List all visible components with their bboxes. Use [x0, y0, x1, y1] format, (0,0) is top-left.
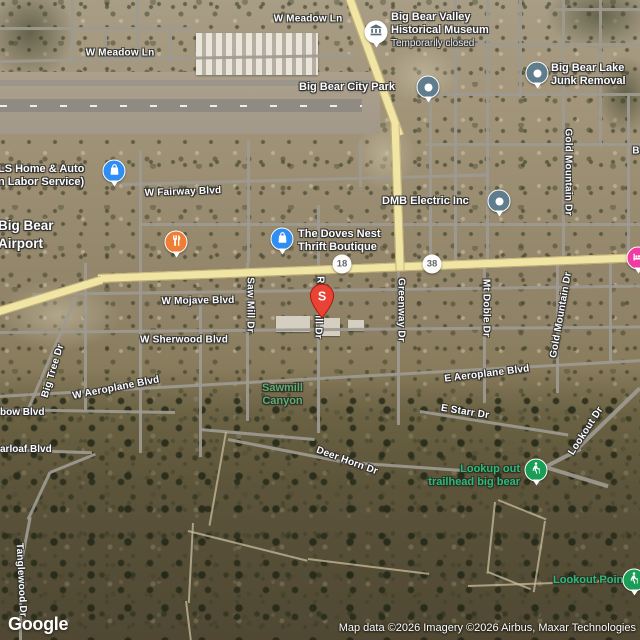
hiking-icon [530, 461, 543, 479]
doves-nest-pin[interactable] [271, 228, 294, 251]
bed-icon [632, 249, 640, 267]
restaurant-pin[interactable] [165, 231, 188, 254]
road-segment [430, 93, 640, 96]
poi-label-line: Junk Removal [551, 75, 626, 88]
road-segment [71, 0, 74, 62]
ls-home-auto-pin[interactable] [103, 160, 126, 183]
road-segment [139, 263, 142, 453]
poi-label-doves-nest[interactable]: The Doves Nest Thrift Boutique [298, 228, 381, 253]
poi-label-big-bear-airport[interactable]: Big Bear Airport [0, 217, 54, 252]
poi-label-line: n Labor Service) [0, 176, 84, 189]
poi-label-big-bear-city-park[interactable]: Big Bear City Park [299, 81, 395, 94]
shopping-bag-icon [108, 162, 120, 180]
poi-label-line: trailhead big bear [428, 476, 520, 489]
lookout-point-pin[interactable] [623, 569, 640, 592]
city-park-pin[interactable] [417, 76, 440, 99]
place-dot-icon [495, 197, 503, 205]
street-label-w-meadow-ln-2: W Meadow Ln [274, 14, 343, 25]
marker-letter: S [318, 290, 326, 304]
poi-label-line: Big Bear Lake [551, 62, 626, 75]
road-segment [609, 263, 612, 363]
route-shield-18-label: 18 [337, 259, 348, 270]
road-segment [169, 27, 172, 62]
street-label-saw-mill-dr: Saw Mill Dr [245, 277, 256, 333]
road-segment [555, 8, 640, 11]
road-segment [140, 223, 640, 226]
airport-runway [0, 99, 362, 112]
poi-label-line: Thrift Boutique [298, 241, 381, 254]
poi-label-trailhead[interactable]: Lookup out trailhead big bear [428, 463, 520, 488]
street-label-greenway-dr: Greenway Dr [396, 278, 407, 342]
route-shield-18: 18 [333, 255, 352, 274]
street-label-w-sherwood-blvd: W Sherwood Blvd [140, 335, 228, 346]
road-saw-mill-n [247, 140, 250, 263]
street-label-w-mojave-blvd: W Mojave Blvd [161, 295, 234, 307]
poi-label-historical-museum[interactable]: Big Bear Valley Historical Museum Tempor… [391, 11, 489, 51]
street-label-b-partial: B [632, 146, 639, 157]
poi-label-line: LS Home & Auto [0, 163, 84, 176]
street-label-rainbow-blvd-partial: bow Blvd [0, 407, 44, 418]
place-dot-icon [533, 69, 541, 77]
museum-pin[interactable] [365, 21, 388, 44]
trailhead-pin[interactable] [525, 459, 548, 482]
poi-label-line: The Doves Nest [298, 228, 381, 241]
restaurant-icon [170, 233, 182, 251]
google-logo[interactable]: Google [8, 614, 68, 635]
road-segment [470, 43, 640, 46]
museum-icon [370, 23, 383, 41]
place-dot-icon [424, 83, 432, 91]
poi-label-ls-home-auto[interactable]: LS Home & Auto n Labor Service) [0, 163, 84, 188]
street-label-sugarloaf-blvd-partial: arloaf Blvd [0, 444, 52, 455]
park-label-sawmill-canyon[interactable]: Sawmill Canyon [262, 382, 303, 407]
route-shield-38-label: 38 [427, 259, 438, 270]
poi-label-line: Airport [0, 235, 54, 253]
hiking-icon [628, 571, 640, 589]
park-label-line: Canyon [262, 395, 303, 408]
route-shield-38: 38 [423, 255, 442, 274]
road-segment [429, 95, 432, 263]
road-segment [139, 150, 142, 263]
street-label-w-meadow-ln: W Meadow Ln [86, 48, 155, 59]
poi-label-lookout-point[interactable]: Lookout Point [553, 574, 627, 587]
red-pin-icon: S [309, 283, 335, 319]
park-label-line: Sawmill [262, 382, 303, 395]
poi-label-dmb-electric[interactable]: DMB Electric Inc [382, 195, 469, 208]
search-result-marker[interactable]: S [309, 283, 335, 324]
poi-label-line: Lookup out [428, 463, 520, 476]
poi-label-line: Big Bear [0, 217, 54, 235]
shopping-bag-icon [276, 230, 288, 248]
map-copyright: Map data ©2026 Imagery ©2026 Airbus, Max… [339, 622, 636, 634]
dmb-electric-pin[interactable] [488, 190, 511, 213]
road-segment [627, 95, 630, 263]
poi-status-temporarily-closed: Temporarily closed [391, 38, 489, 51]
junk-removal-pin[interactable] [526, 62, 549, 85]
poi-label-line: Historical Museum [391, 24, 489, 37]
street-label-mt-doble-dr: Mt Doble Dr [481, 279, 492, 337]
road-segment [425, 143, 640, 146]
poi-label-line: Big Bear Valley [391, 11, 489, 24]
road-segment [519, 0, 522, 97]
poi-label-junk-removal[interactable]: Big Bear Lake Junk Removal [551, 62, 626, 87]
satellite-map-canvas[interactable]: 18 38 W Meadow Ln W Meadow Ln W Fairway … [0, 0, 640, 640]
road-segment [359, 140, 362, 187]
road-segment [199, 295, 202, 457]
street-label-gold-mountain-dr-n: Gold Mountain Dr [563, 128, 574, 215]
road-segment [0, 27, 195, 30]
